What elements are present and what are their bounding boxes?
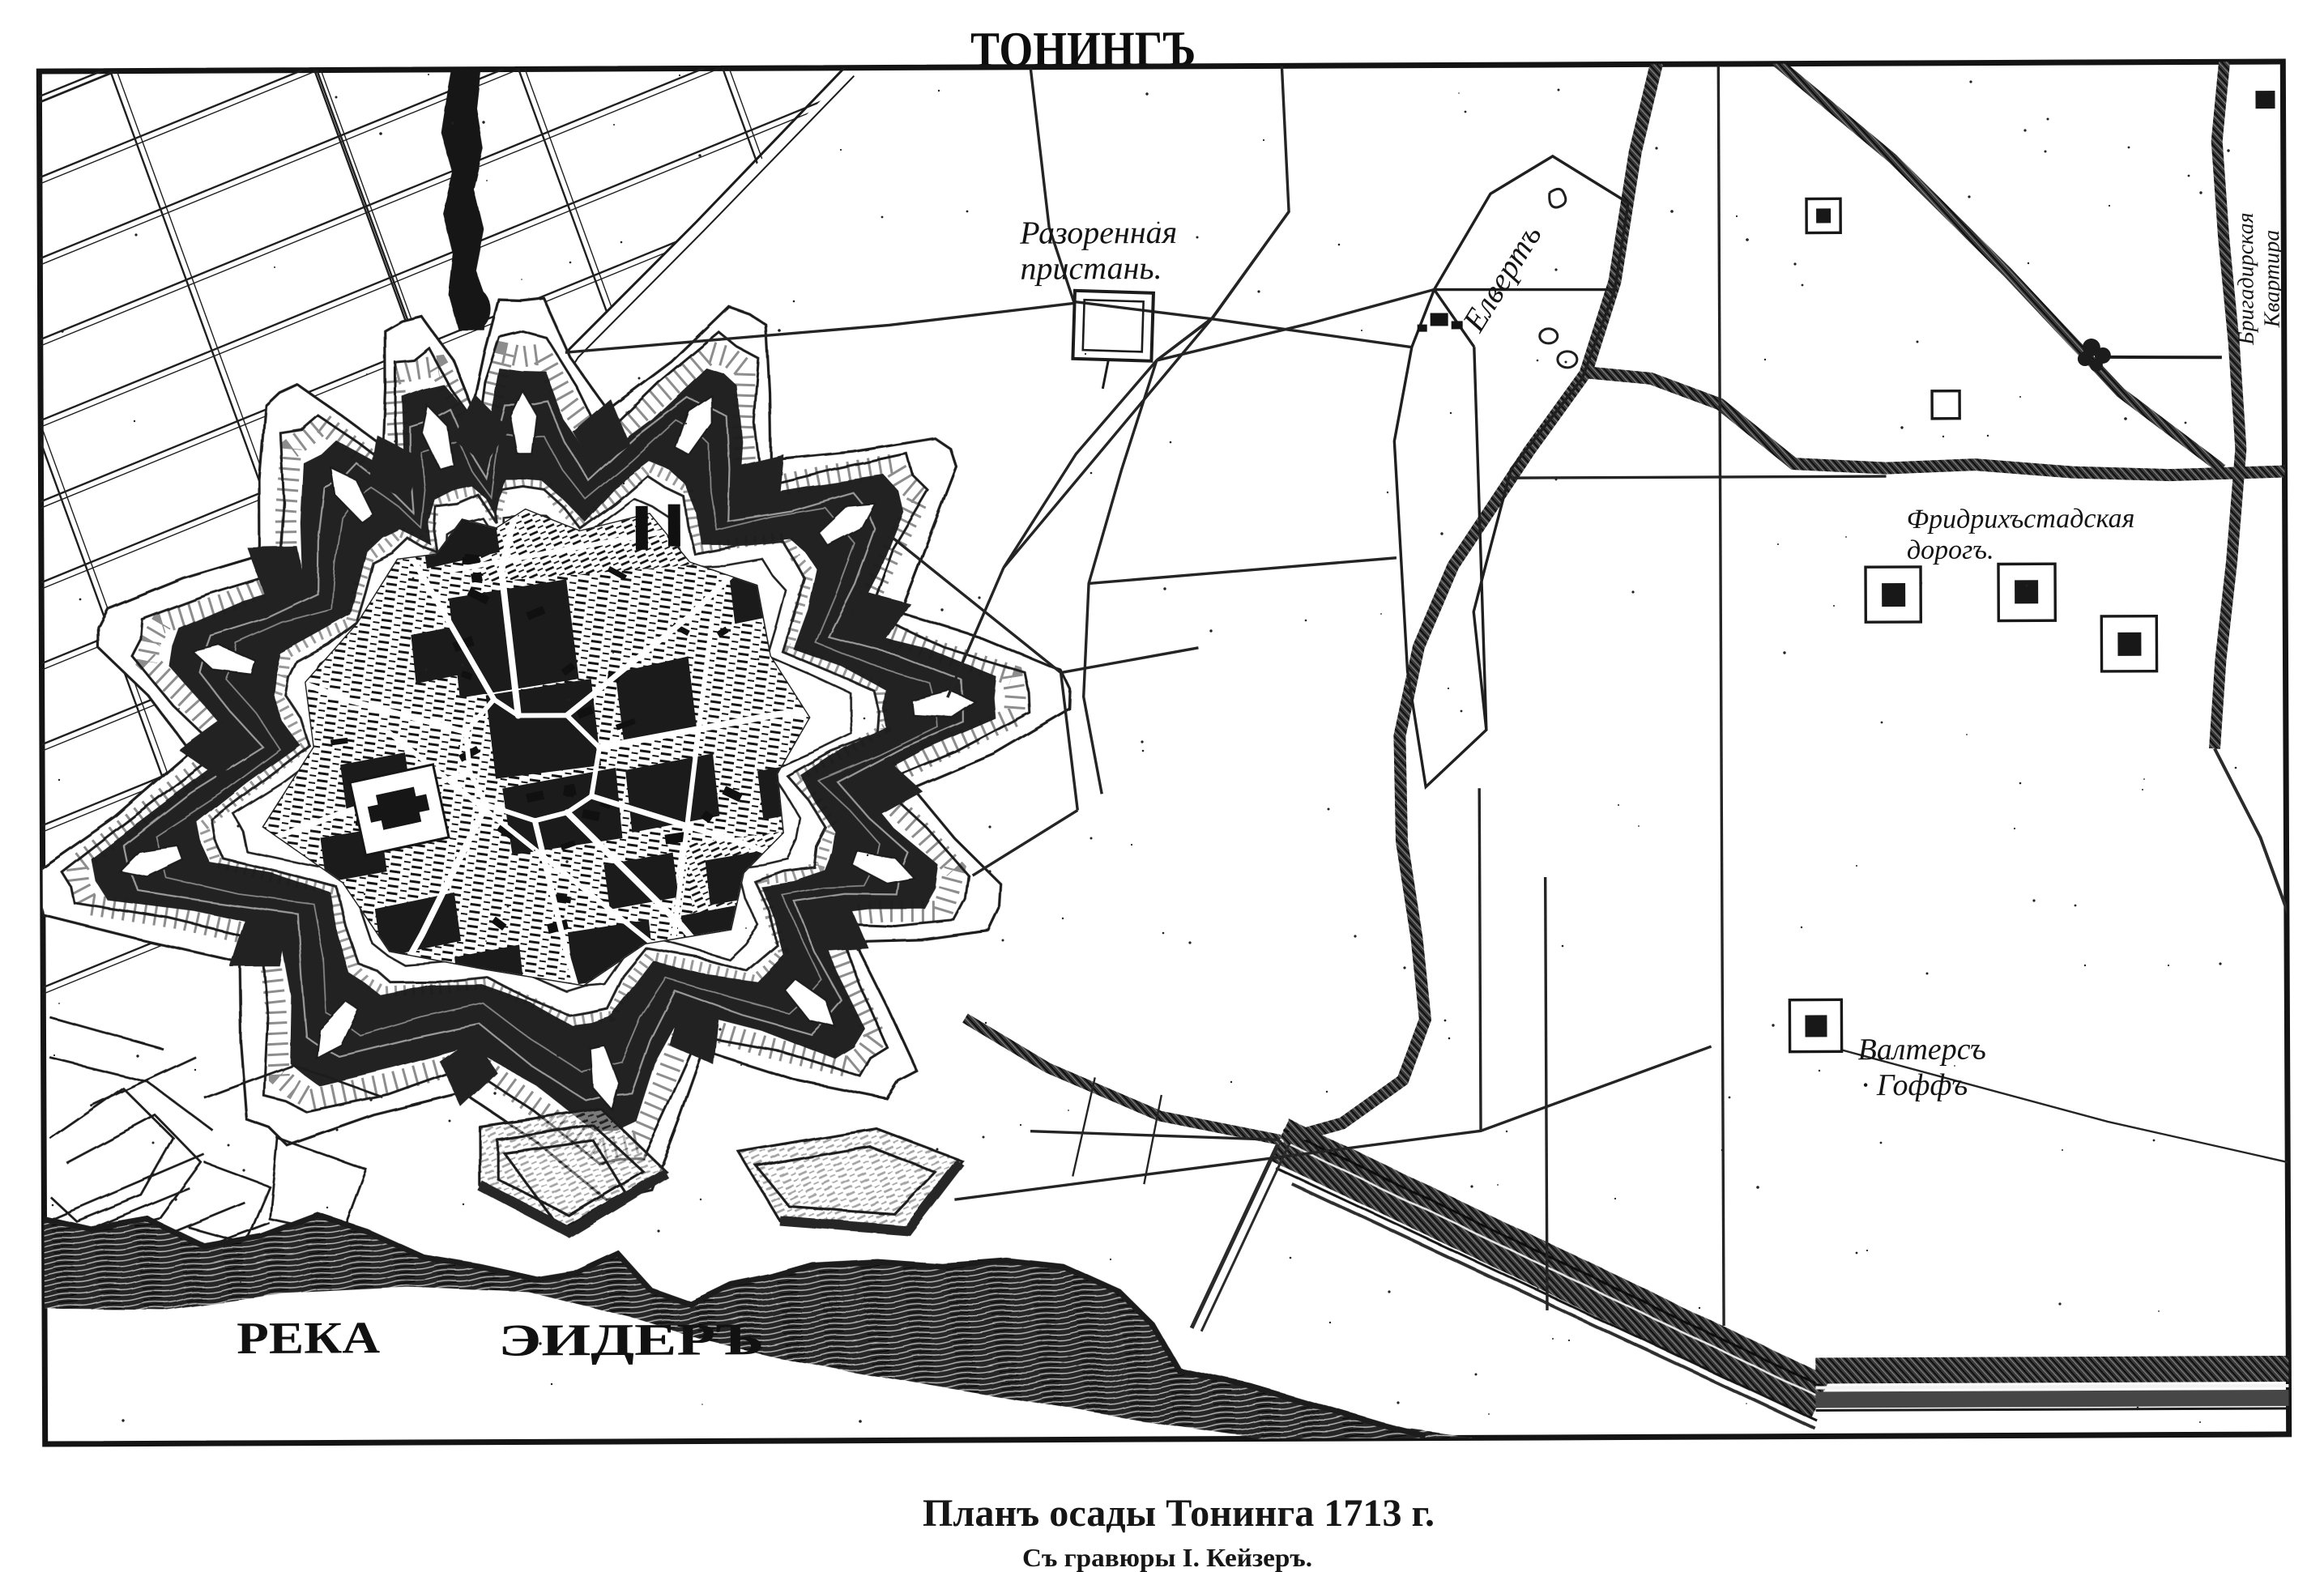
svg-text:РЕКА: РЕКА [237, 1313, 381, 1364]
svg-text:Фридрихъстадская: Фридрихъстадская [1907, 504, 2135, 535]
svg-text:пристань.: пристань. [1020, 249, 1162, 287]
svg-text:Разоренная: Разоренная [1019, 214, 1177, 251]
svg-text:Съ гравюры І. Кейзеръ.: Съ гравюры І. Кейзеръ. [1022, 1543, 1312, 1572]
svg-text:· Гоффъ: · Гоффъ [1861, 1068, 1968, 1103]
svg-text:Валтерсъ: Валтерсъ [1858, 1033, 1986, 1067]
svg-text:Бригадирская: Бригадирская [2233, 212, 2259, 346]
svg-text:дорогъ.: дорогъ. [1907, 535, 1994, 565]
svg-text:ЭИДЕРЪ: ЭИДЕРЪ [498, 1314, 764, 1365]
svg-text:Квартира: Квартира [2259, 230, 2285, 329]
svg-text:Планъ осады Тонинга 1713 г.: Планъ осады Тонинга 1713 г. [923, 1492, 1435, 1535]
